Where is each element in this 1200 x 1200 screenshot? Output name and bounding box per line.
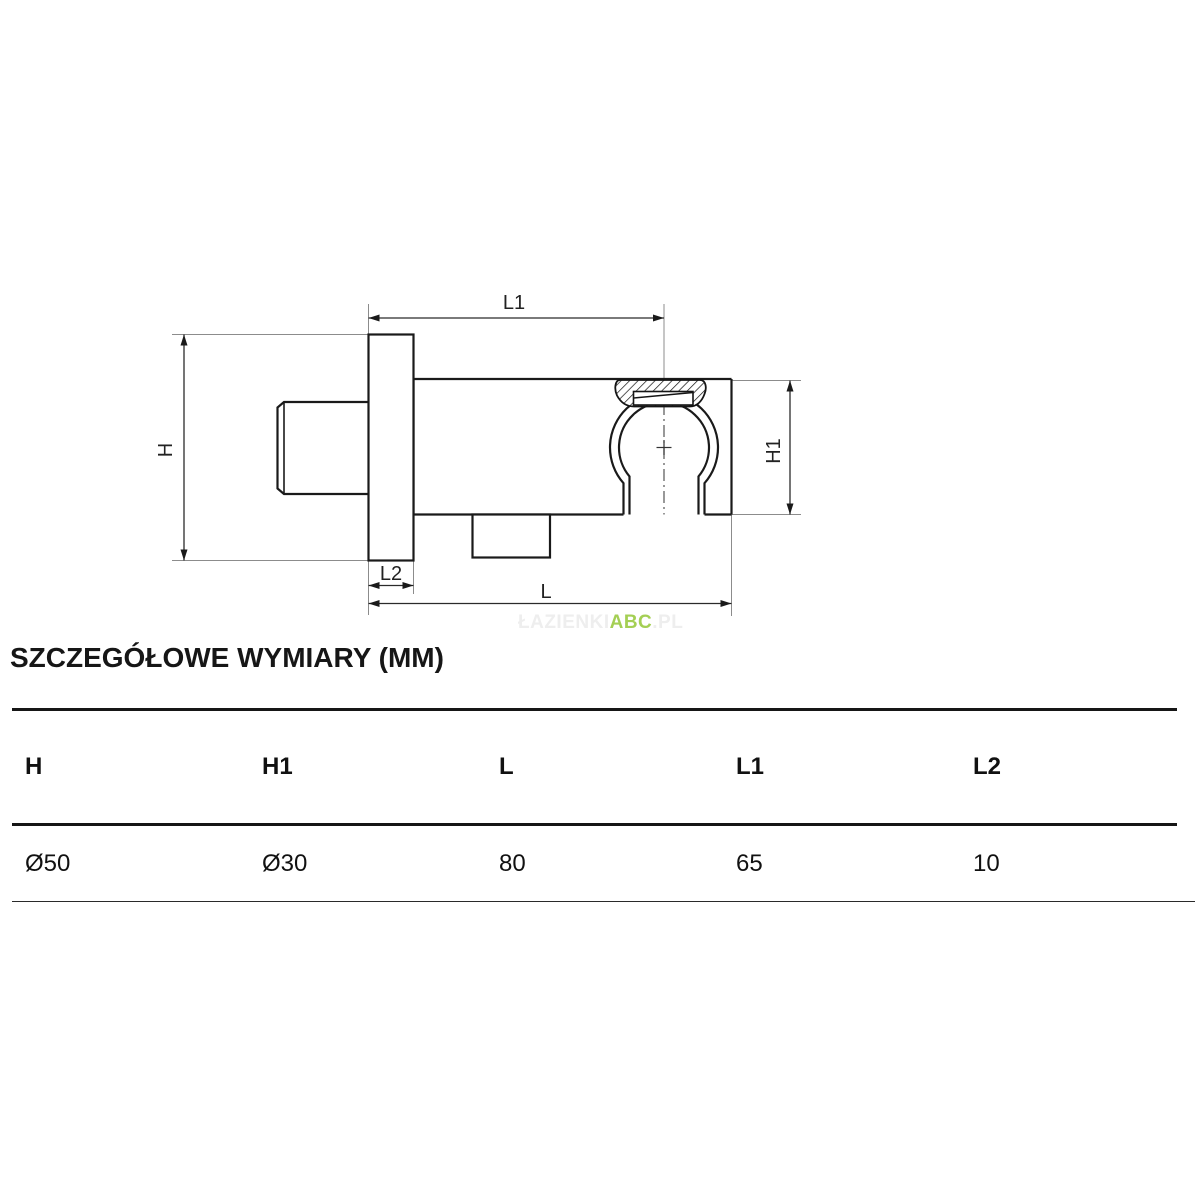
bottom-outlet-shape: [473, 515, 551, 558]
watermark-highlight: ABC: [610, 612, 653, 633]
clamp-hatched-section: [615, 380, 705, 407]
product-dimension-sheet: H L1 H1 L2 L: [0, 0, 1200, 1200]
technical-drawing: H L1 H1 L2 L: [0, 0, 1200, 650]
table-value-l2: 10: [960, 850, 1177, 878]
dim-label-l: L: [540, 581, 551, 603]
table-header-l1: L1: [723, 753, 960, 781]
table-header-row: H H1 L L1 L2: [12, 711, 1177, 823]
watermark-prefix: ŁAZIENKI: [518, 612, 610, 633]
table-header-l2: L2: [960, 753, 1177, 781]
table-value-l: 80: [486, 850, 723, 878]
table-header-h: H: [12, 753, 249, 781]
dimensions-table: H H1 L L1 L2 Ø50 Ø30 80 65 10: [12, 708, 1177, 902]
table-rule-bottom: [12, 901, 1195, 902]
wall-flange-shape: [369, 335, 414, 561]
section-title: SZCZEGÓŁOWE WYMIARY (MM): [10, 642, 444, 674]
dim-label-h: H: [155, 443, 177, 457]
watermark-suffix: .PL: [652, 612, 683, 633]
table-header-h1: H1: [249, 753, 486, 781]
dim-label-l2: L2: [380, 563, 402, 585]
table-value-h: Ø50: [12, 850, 249, 878]
watermark: ŁAZIENKIABC.PL: [518, 612, 683, 634]
table-value-l1: 65: [723, 850, 960, 878]
table-value-row: Ø50 Ø30 80 65 10: [12, 826, 1177, 901]
dim-label-h1: H1: [763, 438, 785, 464]
table-header-l: L: [486, 753, 723, 781]
inlet-connector-shape: [278, 402, 369, 494]
table-value-h1: Ø30: [249, 850, 486, 878]
dim-label-l1: L1: [503, 292, 525, 314]
